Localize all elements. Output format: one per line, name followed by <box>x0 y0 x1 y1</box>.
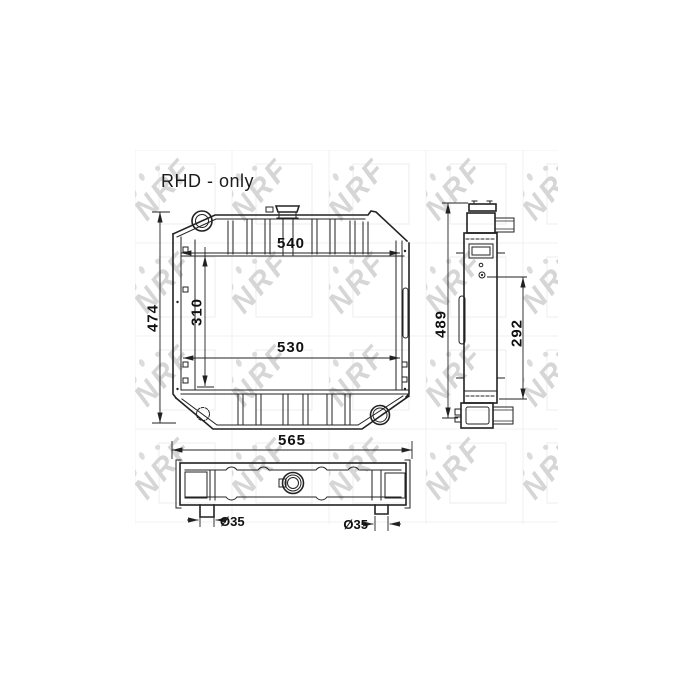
note-rhd-only: RHD - only <box>161 171 254 191</box>
front-height-label: 474 <box>144 304 161 332</box>
bottom-width-label: 565 <box>278 432 306 449</box>
front-core-height-label: 310 <box>188 298 205 326</box>
front-top-width-label: 540 <box>277 235 305 252</box>
front-bottom-width-label: 530 <box>277 339 305 356</box>
right-pipe-diameter-label: Ø35 <box>343 517 368 532</box>
left-pipe-diameter-label: Ø35 <box>220 514 245 529</box>
radiator-technical-drawing: NRF RHD - only <box>0 0 700 700</box>
watermark-area <box>135 150 558 524</box>
side-core-height-label: 292 <box>508 319 525 347</box>
diagram-canvas: NRF RHD - only <box>0 0 700 700</box>
side-height-label: 489 <box>432 310 449 338</box>
